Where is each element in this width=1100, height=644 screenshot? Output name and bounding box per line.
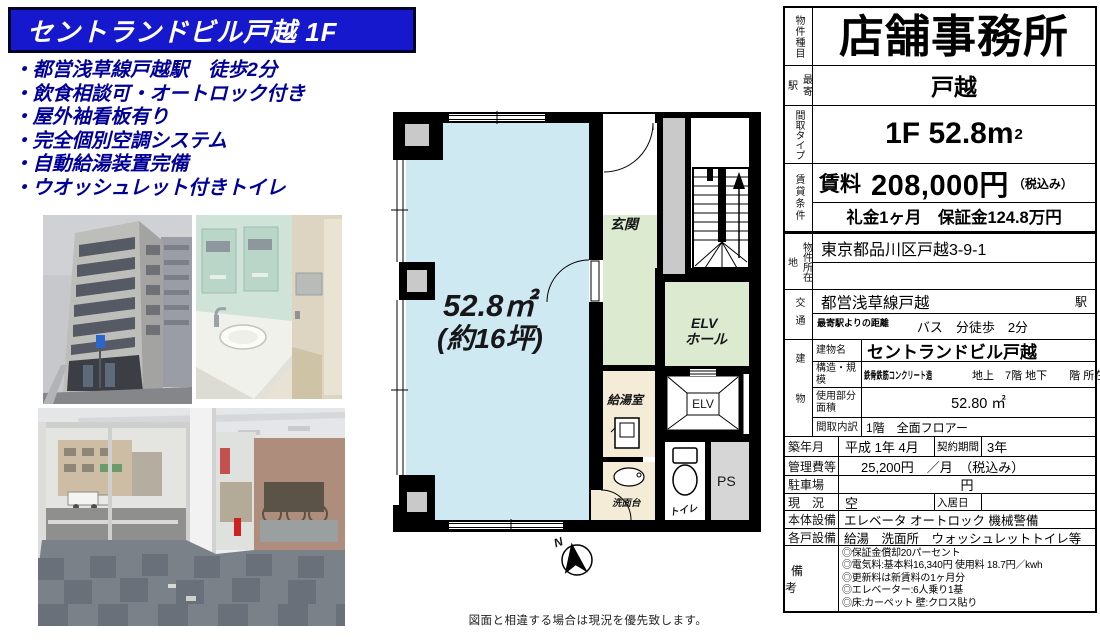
structure-value: 鉄骨鉄筋コンクリート造 地上 7階 地下 階 所在階 1階 (862, 362, 1095, 387)
structure-type: 鉄骨鉄筋コンクリート造 (864, 367, 931, 382)
access-line-value: 都営浅草線戸越 (821, 291, 930, 313)
title-banner: セントランドビル戸越 1F (8, 7, 416, 53)
feature-list: ・都営浅草線戸越駅 徒歩2分 ・飲食相談可・オートロック付き ・屋外袖看板有り … (13, 59, 398, 200)
address-value: 東京都品川区戸越3-9-1 (813, 234, 1095, 263)
address-label: 物件所在地 (785, 234, 813, 289)
kyutou-label: 給湯室 (606, 393, 645, 407)
note-item: ◎エレベーター:6人乗り1基 (842, 585, 1095, 597)
rent-tax-note: （税込み） (1013, 175, 1073, 192)
note-item: ◎電気料:基本料16,340円 使用料 18.7円／kwh (842, 560, 1095, 572)
elv-hall-label-2: ホール (685, 331, 728, 347)
parking-value: 円 (839, 476, 1095, 493)
movein-value (982, 494, 1095, 510)
unit-equip-value: 給湯 洗面所 ウォッシュレットトイレ等 (839, 529, 1095, 545)
layout-sup: 2 (1015, 126, 1023, 143)
feature-item: ・飲食相談可・オートロック付き (13, 83, 398, 107)
fee-value: 25,200円 ／月 （税込み） (839, 457, 1095, 475)
property-type-value: 店舗事務所 (813, 8, 1095, 64)
note-item: ◎更新料は新賃料の1ヶ月分 (842, 573, 1095, 585)
movein-label: 入居日 (935, 494, 982, 510)
staircase (693, 168, 749, 268)
access-distance-label: 最寄駅よりの距離 (817, 316, 889, 329)
feature-item: ・都営浅草線戸越駅 徒歩2分 (13, 59, 398, 83)
feature-item: ・屋外袖看板有り (13, 106, 398, 130)
access-line: 都営浅草線戸越 駅 (813, 290, 1095, 314)
station-label: 最寄駅 (785, 66, 813, 105)
area-label: 52.8㎡ (443, 288, 540, 323)
built-label: 築年月 (785, 437, 839, 456)
terms-label: 賃貸条件 (785, 164, 813, 231)
north-compass: N (552, 534, 592, 576)
layout-value: 1F 52.8m2 (813, 106, 1095, 162)
station-value: 戸越 (813, 66, 1095, 104)
layout-main: 1F 52.8m (885, 117, 1013, 151)
access-station-suffix: 駅 (1075, 293, 1087, 310)
access-distance-value: バス 分徒歩 2分 (917, 317, 1028, 336)
plan-footnote: 図面と相違する場合は現況を優先致します。 (402, 612, 774, 628)
photo-office-interior (38, 408, 345, 626)
senmendai-label: 洗面台 (612, 497, 642, 509)
elv-label: ELV (692, 397, 714, 411)
unit-equip-label: 各戸設備 (785, 529, 839, 545)
photo-washroom-interior (196, 215, 342, 399)
ps-label: PS (717, 473, 736, 489)
building-label: 建物 (785, 340, 813, 436)
spec-table-details: 物件所在地 東京都品川区戸越3-9-1 交通 都営浅草線戸越 駅 最寄駅よりの距… (783, 232, 1097, 613)
note-item: ◎床:カーペット 壁:クロス貼り (842, 598, 1095, 610)
address-line2 (813, 263, 1095, 288)
rent-label: 賃料 (819, 168, 861, 198)
main-equip-value: エレベータ オートロック 機械警備 (839, 511, 1095, 528)
contract-value: 3年 (982, 437, 1095, 456)
notes-label: 備 考 (785, 546, 839, 611)
rent-amount: 208,000円 (871, 162, 1009, 204)
madori-value: 1階 全面フロアー (862, 418, 1095, 436)
washstand (614, 468, 644, 486)
notes-body: ◎保証金償却20パーセント ◎電気料:基本料16,340円 使用料 18.7円／… (839, 546, 1095, 611)
area-tsubo-label: (約16坪) (437, 323, 543, 354)
used-area-value: 52.80 ㎡ (862, 388, 1095, 417)
elv-hall-label-1: ELV (691, 315, 719, 331)
spec-table-top: 物件種目 店舗事務所 最寄駅 戸越 間取タイプ 1F 52.8m2 賃貸条件 賃… (783, 6, 1097, 233)
deposit-row: 礼金1ヶ月 保証金124.8万円 (813, 203, 1095, 229)
kitchen-sink (611, 418, 639, 448)
built-value: 平成 1年 4月 (839, 437, 935, 456)
main-equip-label: 本体設備 (785, 511, 839, 528)
rent-row: 賃料 208,000円 （税込み） (813, 164, 1095, 203)
structure-detail: 地上 7階 地下 階 所在階 1階 (972, 367, 1100, 383)
feature-item: ・完全個別空調システム (13, 130, 398, 154)
property-type-label: 物件種目 (785, 8, 813, 65)
page-title: セントランドビル戸越 1F (27, 12, 338, 49)
feature-item: ・ウオッシュレット付きトイレ (13, 177, 398, 201)
building-name-value: セントランドビル戸越 (862, 340, 1095, 361)
layout-label: 間取タイプ (785, 106, 813, 163)
photo-building-exterior (43, 215, 192, 404)
floor-plan: N 52.8㎡ (約16坪) 玄関 ELV ホール 給湯室 ELV 洗面台 トイ… (391, 110, 763, 585)
used-area-label: 使用部分面積 (813, 388, 862, 417)
note-item: ◎保証金償却20パーセント (842, 548, 1095, 560)
parking-label: 駐車場 (785, 476, 839, 493)
madori-label: 間取内訳 (813, 418, 862, 436)
structure-label: 構造・規模 (813, 362, 862, 387)
status-label: 現 況 (785, 494, 839, 510)
north-label: N (552, 534, 565, 550)
toilet-fixture (673, 448, 697, 495)
feature-item: ・自動給湯装置完備 (13, 153, 398, 177)
real-estate-flyer: { "header": { "title": "セントランドビル戸越 1F" }… (0, 0, 1100, 644)
genkan-label: 玄関 (610, 216, 640, 232)
contract-label: 契約期間 (935, 437, 982, 456)
access-distance-row: 最寄駅よりの距離 バス 分徒歩 2分 (813, 314, 1095, 338)
building-name-label: 建物名 (813, 340, 862, 361)
fee-label: 管理費等 (785, 457, 839, 475)
status-value: 空 (839, 494, 935, 510)
genkan-area (601, 215, 657, 367)
access-label: 交通 (785, 290, 813, 339)
